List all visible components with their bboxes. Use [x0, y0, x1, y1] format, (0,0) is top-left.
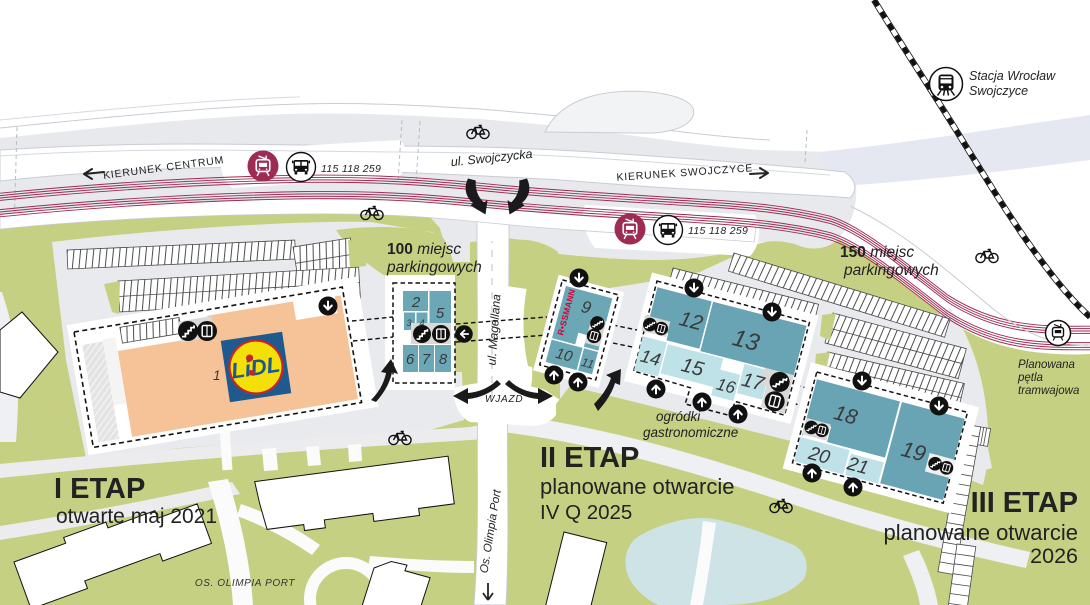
- svg-text:III ETAP: III ETAP: [971, 487, 1078, 519]
- svg-text:8: 8: [439, 351, 448, 368]
- svg-text:gastronomiczne: gastronomiczne: [643, 425, 738, 440]
- svg-text:pętla: pętla: [1017, 372, 1043, 384]
- svg-text:OS. OLIMPIA PORT: OS. OLIMPIA PORT: [195, 578, 295, 589]
- svg-text:Stacja Wrocław: Stacja Wrocław: [969, 69, 1056, 83]
- svg-text:115 118 259: 115 118 259: [688, 225, 748, 237]
- svg-text:otwarte maj 2021: otwarte maj 2021: [56, 505, 217, 528]
- svg-text:150 miejsc: 150 miejsc: [840, 244, 914, 261]
- svg-text:7: 7: [422, 351, 431, 368]
- svg-text:parkingowych: parkingowych: [843, 262, 939, 279]
- svg-text:ogródki: ogródki: [656, 409, 701, 424]
- svg-text:tramwajowa: tramwajowa: [1018, 385, 1079, 397]
- svg-text:I ETAP: I ETAP: [54, 473, 145, 505]
- svg-text:II ETAP: II ETAP: [540, 442, 639, 474]
- svg-text:parkingowych: parkingowych: [386, 259, 482, 276]
- svg-text:planowane otwarcie: planowane otwarcie: [884, 520, 1078, 545]
- svg-text:100 miejsc: 100 miejsc: [387, 241, 461, 258]
- svg-text:2026: 2026: [1030, 544, 1078, 568]
- svg-text:2: 2: [411, 294, 421, 311]
- svg-text:5: 5: [436, 305, 445, 322]
- svg-text:Planowana: Planowana: [1018, 359, 1075, 371]
- svg-text:planowane otwarcie: planowane otwarcie: [540, 474, 734, 499]
- svg-text:IV Q 2025: IV Q 2025: [540, 501, 632, 524]
- svg-text:Swojczyce: Swojczyce: [969, 84, 1028, 98]
- svg-text:6: 6: [406, 351, 415, 368]
- svg-text:115 118 259: 115 118 259: [321, 163, 381, 175]
- svg-text:WJAZD: WJAZD: [485, 394, 523, 405]
- svg-text:1: 1: [213, 368, 221, 383]
- svg-text:3: 3: [406, 318, 411, 328]
